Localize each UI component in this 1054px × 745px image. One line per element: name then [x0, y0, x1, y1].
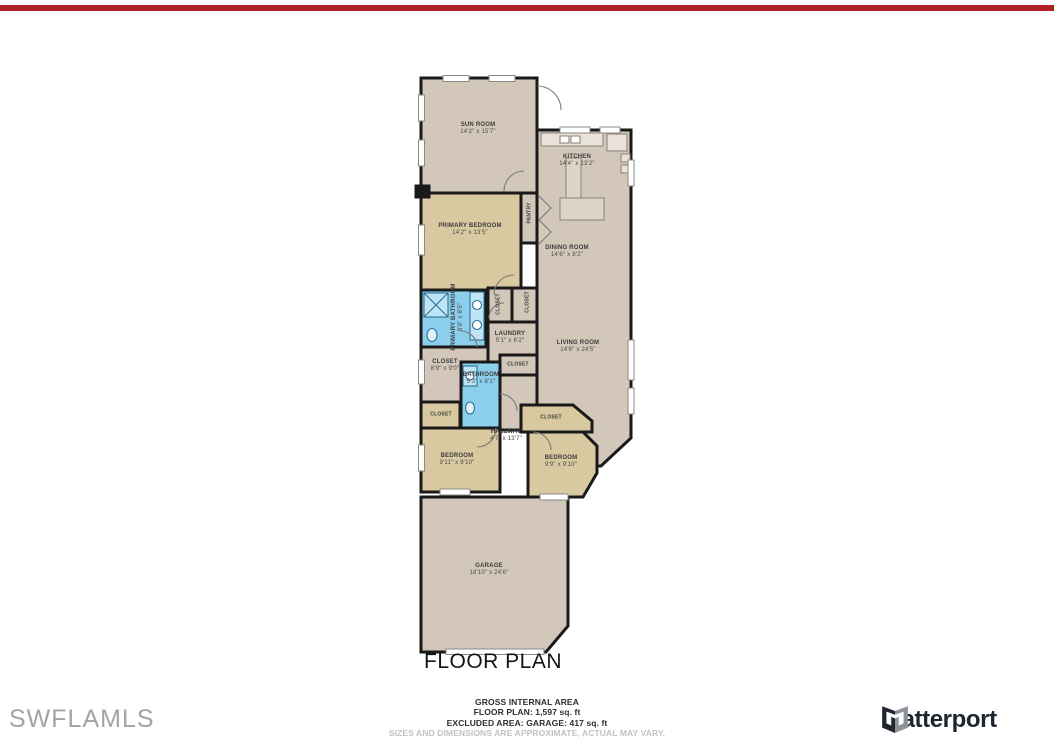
- floor-plan-drawing: [0, 0, 1054, 745]
- room-label-bedroom-left: BEDROOM 9'11" x 9'10": [439, 453, 474, 467]
- room-label-sunroom: SUN ROOM 14'2" x 15'7": [460, 122, 496, 136]
- page-title: FLOOR PLAN: [424, 650, 562, 674]
- closet-main-label: CLOSET 8'9" x 9'0": [431, 359, 459, 373]
- room-label-hallway: HALLWAY 4'7" x 13'7": [490, 429, 522, 443]
- closet-left-label: CLOSET: [430, 412, 451, 418]
- room-label-kitchen: KITCHEN 14'4" x 13'2": [559, 154, 595, 168]
- mls-watermark-text: SWFLAMLS: [9, 705, 155, 734]
- closet-b-label: CLOSET: [525, 291, 531, 312]
- room-label-bedroom-right: BEDROOM 9'9" x 9'10": [545, 455, 578, 469]
- room-label-laundry: LAUNDRY 5'1" x 6'2": [495, 331, 526, 345]
- closet-a-label: CLOSET: [496, 293, 502, 314]
- closet-right-label: CLOSET: [540, 415, 561, 421]
- room-primary-bedroom-floor: [421, 193, 521, 295]
- matterport-brand: Matterport: [882, 703, 1047, 737]
- room-label-primary-bath: PRIMARY BATHROOM 8'9" x 8'5": [451, 283, 465, 350]
- room-label-living: LIVING ROOM 14'6" x 24'5": [557, 340, 600, 354]
- closet-hall-label: CLOSET: [507, 362, 528, 368]
- room-label-pantry: PANTRY: [527, 202, 533, 223]
- wall-post: [416, 186, 429, 197]
- room-label-primary-bedroom: PRIMARY BEDROOM 14'2" x 13'5": [438, 223, 501, 237]
- room-label-dining: DINING ROOM 14'6" x 8'2": [545, 245, 589, 259]
- matterport-folded-m-icon: [882, 703, 908, 733]
- room-label-garage: GARAGE 18'10" x 24'6": [469, 563, 508, 577]
- room-label-bathroom: BATHROOM 5'3" x 8'1": [463, 372, 499, 386]
